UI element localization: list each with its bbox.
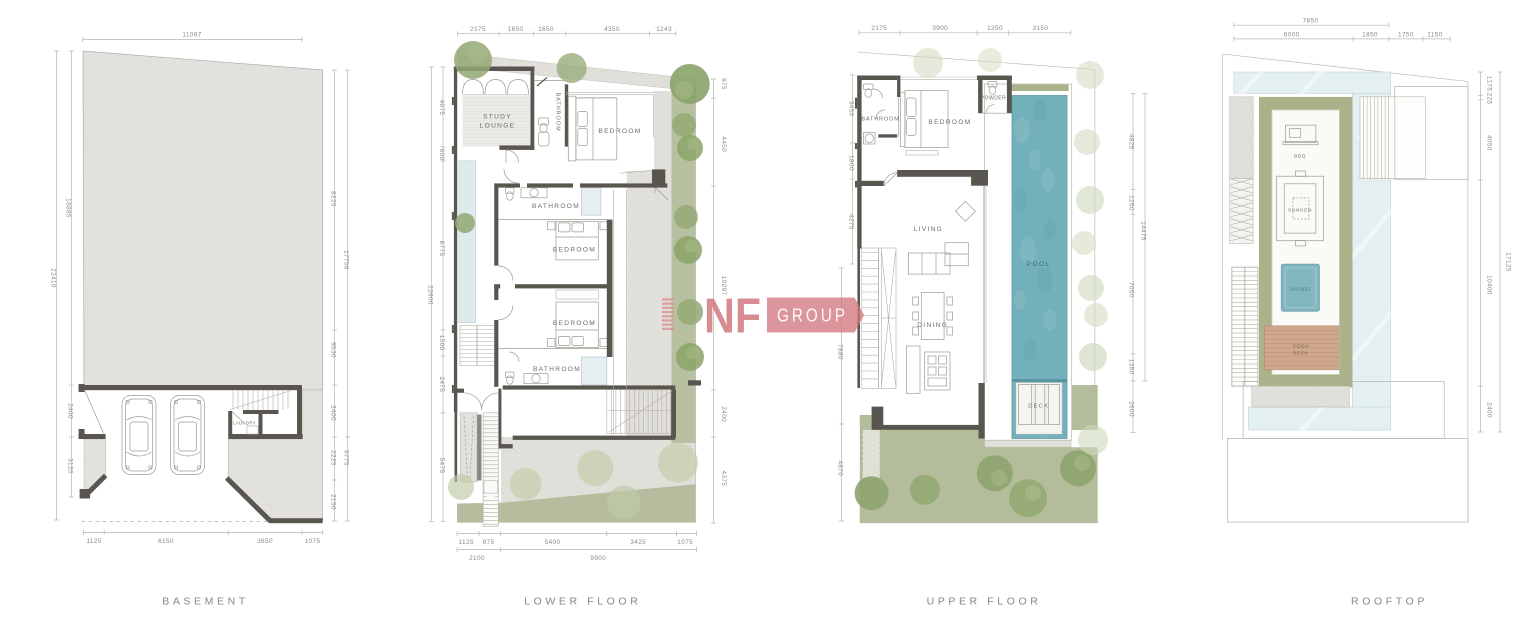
svg-text:LOWER FLOOR: LOWER FLOOR [524,596,641,608]
svg-text:DECK: DECK [1028,404,1049,410]
svg-text:LAUNDRY: LAUNDRY [233,421,256,426]
svg-text:1800: 1800 [848,155,855,171]
svg-text:1250: 1250 [987,25,1003,32]
svg-text:1350: 1350 [1128,359,1135,375]
svg-text:3450: 3450 [848,101,855,117]
svg-text:1125: 1125 [459,539,474,546]
svg-text:BEDROOM: BEDROOM [928,119,971,126]
svg-text:1150: 1150 [1427,32,1442,39]
svg-text:2400: 2400 [67,403,74,419]
svg-text:2400: 2400 [720,406,727,422]
svg-text:1650: 1650 [508,26,524,33]
svg-text:4275: 4275 [848,214,855,230]
svg-text:3900: 3900 [932,25,948,32]
svg-text:LOUNGE: LOUNGE [480,123,516,130]
svg-text:975: 975 [483,539,495,546]
svg-text:DECK: DECK [1293,351,1309,357]
svg-text:1125: 1125 [86,538,101,545]
svg-text:14475: 14475 [1140,221,1147,241]
svg-text:2600: 2600 [1128,401,1135,417]
svg-text:BATHROOM: BATHROOM [532,203,580,210]
svg-text:2100: 2100 [469,555,485,562]
svg-text:16885: 16885 [65,198,72,218]
svg-text:22410: 22410 [50,268,57,288]
svg-text:BEDROOM: BEDROOM [598,128,641,135]
svg-text:1175: 1175 [1486,76,1493,91]
svg-text:4825: 4825 [1128,134,1135,150]
svg-text:11067: 11067 [182,32,201,39]
svg-text:5400: 5400 [545,539,561,546]
svg-text:BATHROOM: BATHROOM [861,117,899,123]
svg-text:3125: 3125 [67,458,74,474]
svg-text:2175: 2175 [470,26,486,33]
svg-text:17756: 17756 [343,250,350,270]
svg-text:LIVING: LIVING [914,226,943,233]
svg-text:GROUP: GROUP [777,306,848,326]
svg-text:6150: 6150 [158,538,174,545]
svg-text:UPPER FLOOR: UPPER FLOOR [927,596,1042,608]
svg-text:BBQ: BBQ [1294,154,1306,160]
svg-text:1075: 1075 [305,538,321,545]
svg-text:22900: 22900 [427,285,434,305]
svg-text:POOL: POOL [1027,261,1051,268]
svg-text:ROOFTOP: ROOFTOP [1351,596,1428,608]
svg-text:7850: 7850 [1303,18,1319,25]
svg-text:4450: 4450 [720,136,727,152]
svg-text:STUDY: STUDY [483,114,512,121]
svg-text:1750: 1750 [1398,32,1414,39]
svg-text:BEDROOM: BEDROOM [553,320,596,327]
svg-text:1850: 1850 [1362,32,1378,39]
svg-text:2400: 2400 [1486,402,1493,418]
svg-text:2475: 2475 [438,376,445,392]
svg-text:POWDER: POWDER [981,96,1007,102]
svg-text:3650: 3650 [257,538,273,545]
svg-text:3150: 3150 [1032,25,1048,32]
svg-text:BATHROOM: BATHROOM [533,366,581,373]
svg-text:1500: 1500 [438,335,445,351]
svg-text:1650: 1650 [538,26,554,33]
svg-text:BEDROOM: BEDROOM [553,247,596,254]
svg-text:7050: 7050 [1128,282,1135,298]
svg-text:2225: 2225 [330,450,337,466]
svg-text:DINING: DINING [917,322,948,329]
svg-text:975: 975 [720,78,727,90]
svg-text:1075: 1075 [677,539,693,546]
svg-text:8225: 8225 [330,191,337,207]
svg-text:9530: 9530 [330,342,337,358]
svg-text:4075: 4075 [438,100,445,116]
svg-text:JACUZI: JACUZI [1290,287,1311,293]
svg-text:1243: 1243 [656,26,672,33]
svg-text:225: 225 [1486,93,1493,105]
svg-text:2150: 2150 [330,494,337,510]
svg-text:9900: 9900 [590,555,606,562]
svg-text:7880: 7880 [837,344,844,360]
svg-text:4350: 4350 [604,26,620,33]
svg-text:2175: 2175 [871,25,887,32]
svg-text:4870: 4870 [837,460,844,476]
svg-text:3425: 3425 [630,539,646,546]
svg-text:2400: 2400 [330,405,337,421]
svg-text:17125: 17125 [1505,252,1512,272]
svg-text:1250: 1250 [1128,195,1135,211]
svg-text:4050: 4050 [1486,135,1493,151]
svg-text:NF: NF [704,290,761,344]
svg-text:6000: 6000 [1284,32,1300,39]
svg-text:4375: 4375 [720,470,727,486]
svg-text:10400: 10400 [1486,275,1493,295]
svg-text:6775: 6775 [343,450,350,466]
svg-text:YOGA: YOGA [1293,344,1310,350]
svg-text:BASEMENT: BASEMENT [162,596,249,608]
svg-text:5475: 5475 [438,458,445,474]
svg-text:8775: 8775 [438,241,445,257]
svg-text:BATHROOM: BATHROOM [555,92,561,131]
svg-text:600: 600 [438,149,445,161]
svg-text:SUNKEN: SUNKEN [1288,208,1312,214]
